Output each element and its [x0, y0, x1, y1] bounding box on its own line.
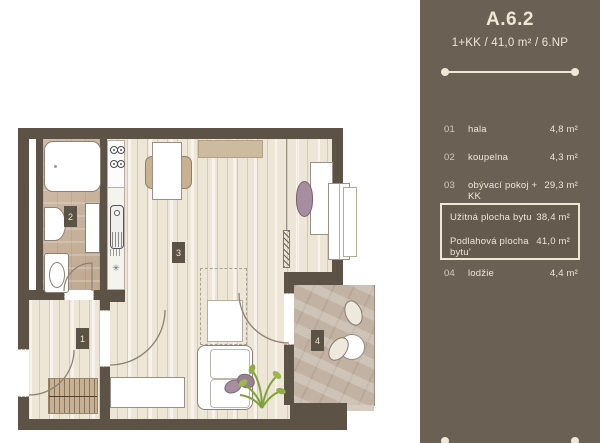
loggia-door-opening [284, 293, 294, 345]
room-area: 4,8 m² [550, 124, 578, 135]
summary-name: Užitná plocha bytu [450, 212, 536, 223]
floorplan-canvas: ✳ [0, 0, 420, 443]
dishwasher [110, 249, 122, 256]
room-row: 03 obývací pokoj + KK 29,3 m² [444, 180, 578, 202]
wall-loggia-left-lower [284, 343, 294, 405]
room-number: 03 [444, 180, 468, 202]
summary-row: Podlahová plocha bytu’ 41,0 m² [450, 236, 570, 258]
room-row: 02 koupelna 4,3 m² [444, 152, 578, 163]
room-label-bathroom: 2 [64, 206, 77, 227]
summary-row: Užitná plocha bytu 38,4 m² [450, 212, 570, 223]
room-name: obývací pokoj + KK [468, 180, 544, 202]
room-name: lodžie [468, 268, 550, 279]
divider-dot-icon [571, 437, 579, 443]
room-number: 01 [444, 124, 468, 135]
radiator [283, 230, 290, 268]
room-label-hall: 1 [76, 328, 89, 349]
room-number: 04 [444, 268, 468, 279]
wall-loggia-left-upper [284, 285, 294, 293]
faucet-icon [114, 210, 120, 216]
burner-icon [117, 160, 125, 168]
info-panel: A.6.2 1+KK / 41,0 m² / 6.NP 01 hala 4,8 … [420, 0, 600, 443]
sideboard [110, 377, 185, 408]
room-area: 29,3 m² [544, 180, 578, 202]
fixture-asterisk-icon: ✳ [108, 263, 124, 274]
bathtub [44, 141, 101, 192]
entrance-door-opening [18, 349, 29, 397]
sink-basin [112, 232, 122, 247]
room-name: koupelna [468, 152, 550, 163]
glass-partition [286, 139, 287, 230]
wall-loggia-bottom [290, 403, 347, 419]
toilet [44, 253, 69, 293]
wardrobe [198, 140, 263, 158]
room-number: 02 [444, 152, 468, 163]
bathtub-drain-icon [54, 165, 57, 168]
bathroom-cabinet [85, 203, 100, 253]
room-name: hala [468, 124, 550, 135]
room-area: 4,3 m² [550, 152, 578, 163]
washbasin [44, 207, 66, 241]
kitchen-sink [110, 205, 124, 249]
burner-icon [117, 146, 125, 154]
wall-bottom [18, 419, 347, 430]
dining-table [152, 142, 182, 200]
sofa [197, 345, 253, 410]
wall-top [18, 128, 343, 139]
coffee-table [207, 300, 243, 342]
divider-dot-icon [441, 437, 449, 443]
stove [108, 141, 124, 188]
window-sill [343, 187, 357, 257]
summary-area: 38,4 m² [536, 212, 570, 223]
kitchen-strip: ✳ [107, 140, 125, 290]
divider-dot-icon [571, 68, 579, 76]
room-label-living: 3 [172, 242, 185, 263]
loggia-shadow [347, 405, 374, 411]
summary-name: Podlahová plocha bytu’ [450, 236, 536, 258]
office-chair [296, 181, 313, 217]
apartment-card: ✳ [0, 0, 600, 443]
room-area: 4,4 m² [550, 268, 578, 279]
wall-bathroom-right [100, 139, 107, 300]
summary-area: 41,0 m² [536, 236, 570, 258]
room-row: 04 lodžie 4,4 m² [444, 268, 578, 279]
room-label-loggia: 4 [311, 330, 324, 351]
wall-loggia-top [284, 272, 343, 285]
wall-shaft [36, 139, 43, 295]
coat-rack-rod [49, 396, 97, 397]
hall-door-opening [100, 310, 110, 367]
apartment-subtitle: 1+KK / 41,0 m² / 6.NP [420, 37, 600, 49]
apartment-title: A.6.2 [420, 9, 600, 31]
area-summary-box: Užitná plocha bytu 38,4 m² Podlahová plo… [440, 203, 580, 260]
divider-dot-icon [441, 68, 449, 76]
coat-rack [48, 378, 98, 414]
window-frame-line [339, 184, 340, 259]
toilet-bowl [49, 262, 65, 288]
room-row: 01 hala 4,8 m² [444, 124, 578, 135]
divider-line [445, 71, 575, 73]
